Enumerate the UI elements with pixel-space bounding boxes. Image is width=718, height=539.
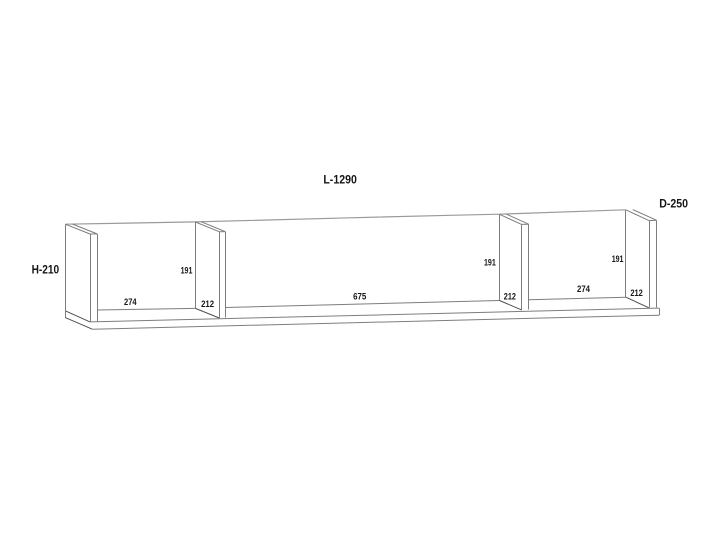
svg-text:191: 191	[181, 265, 193, 275]
svg-text:675: 675	[353, 291, 366, 301]
svg-text:L-1290: L-1290	[323, 174, 357, 186]
svg-text:H-210: H-210	[32, 264, 60, 276]
svg-text:274: 274	[577, 284, 590, 294]
svg-text:212: 212	[630, 288, 643, 298]
svg-text:191: 191	[612, 254, 624, 264]
svg-text:274: 274	[124, 297, 137, 307]
svg-text:212: 212	[504, 292, 516, 302]
svg-text:191: 191	[484, 257, 496, 267]
svg-text:212: 212	[201, 299, 214, 309]
svg-text:D-250: D-250	[659, 199, 688, 211]
